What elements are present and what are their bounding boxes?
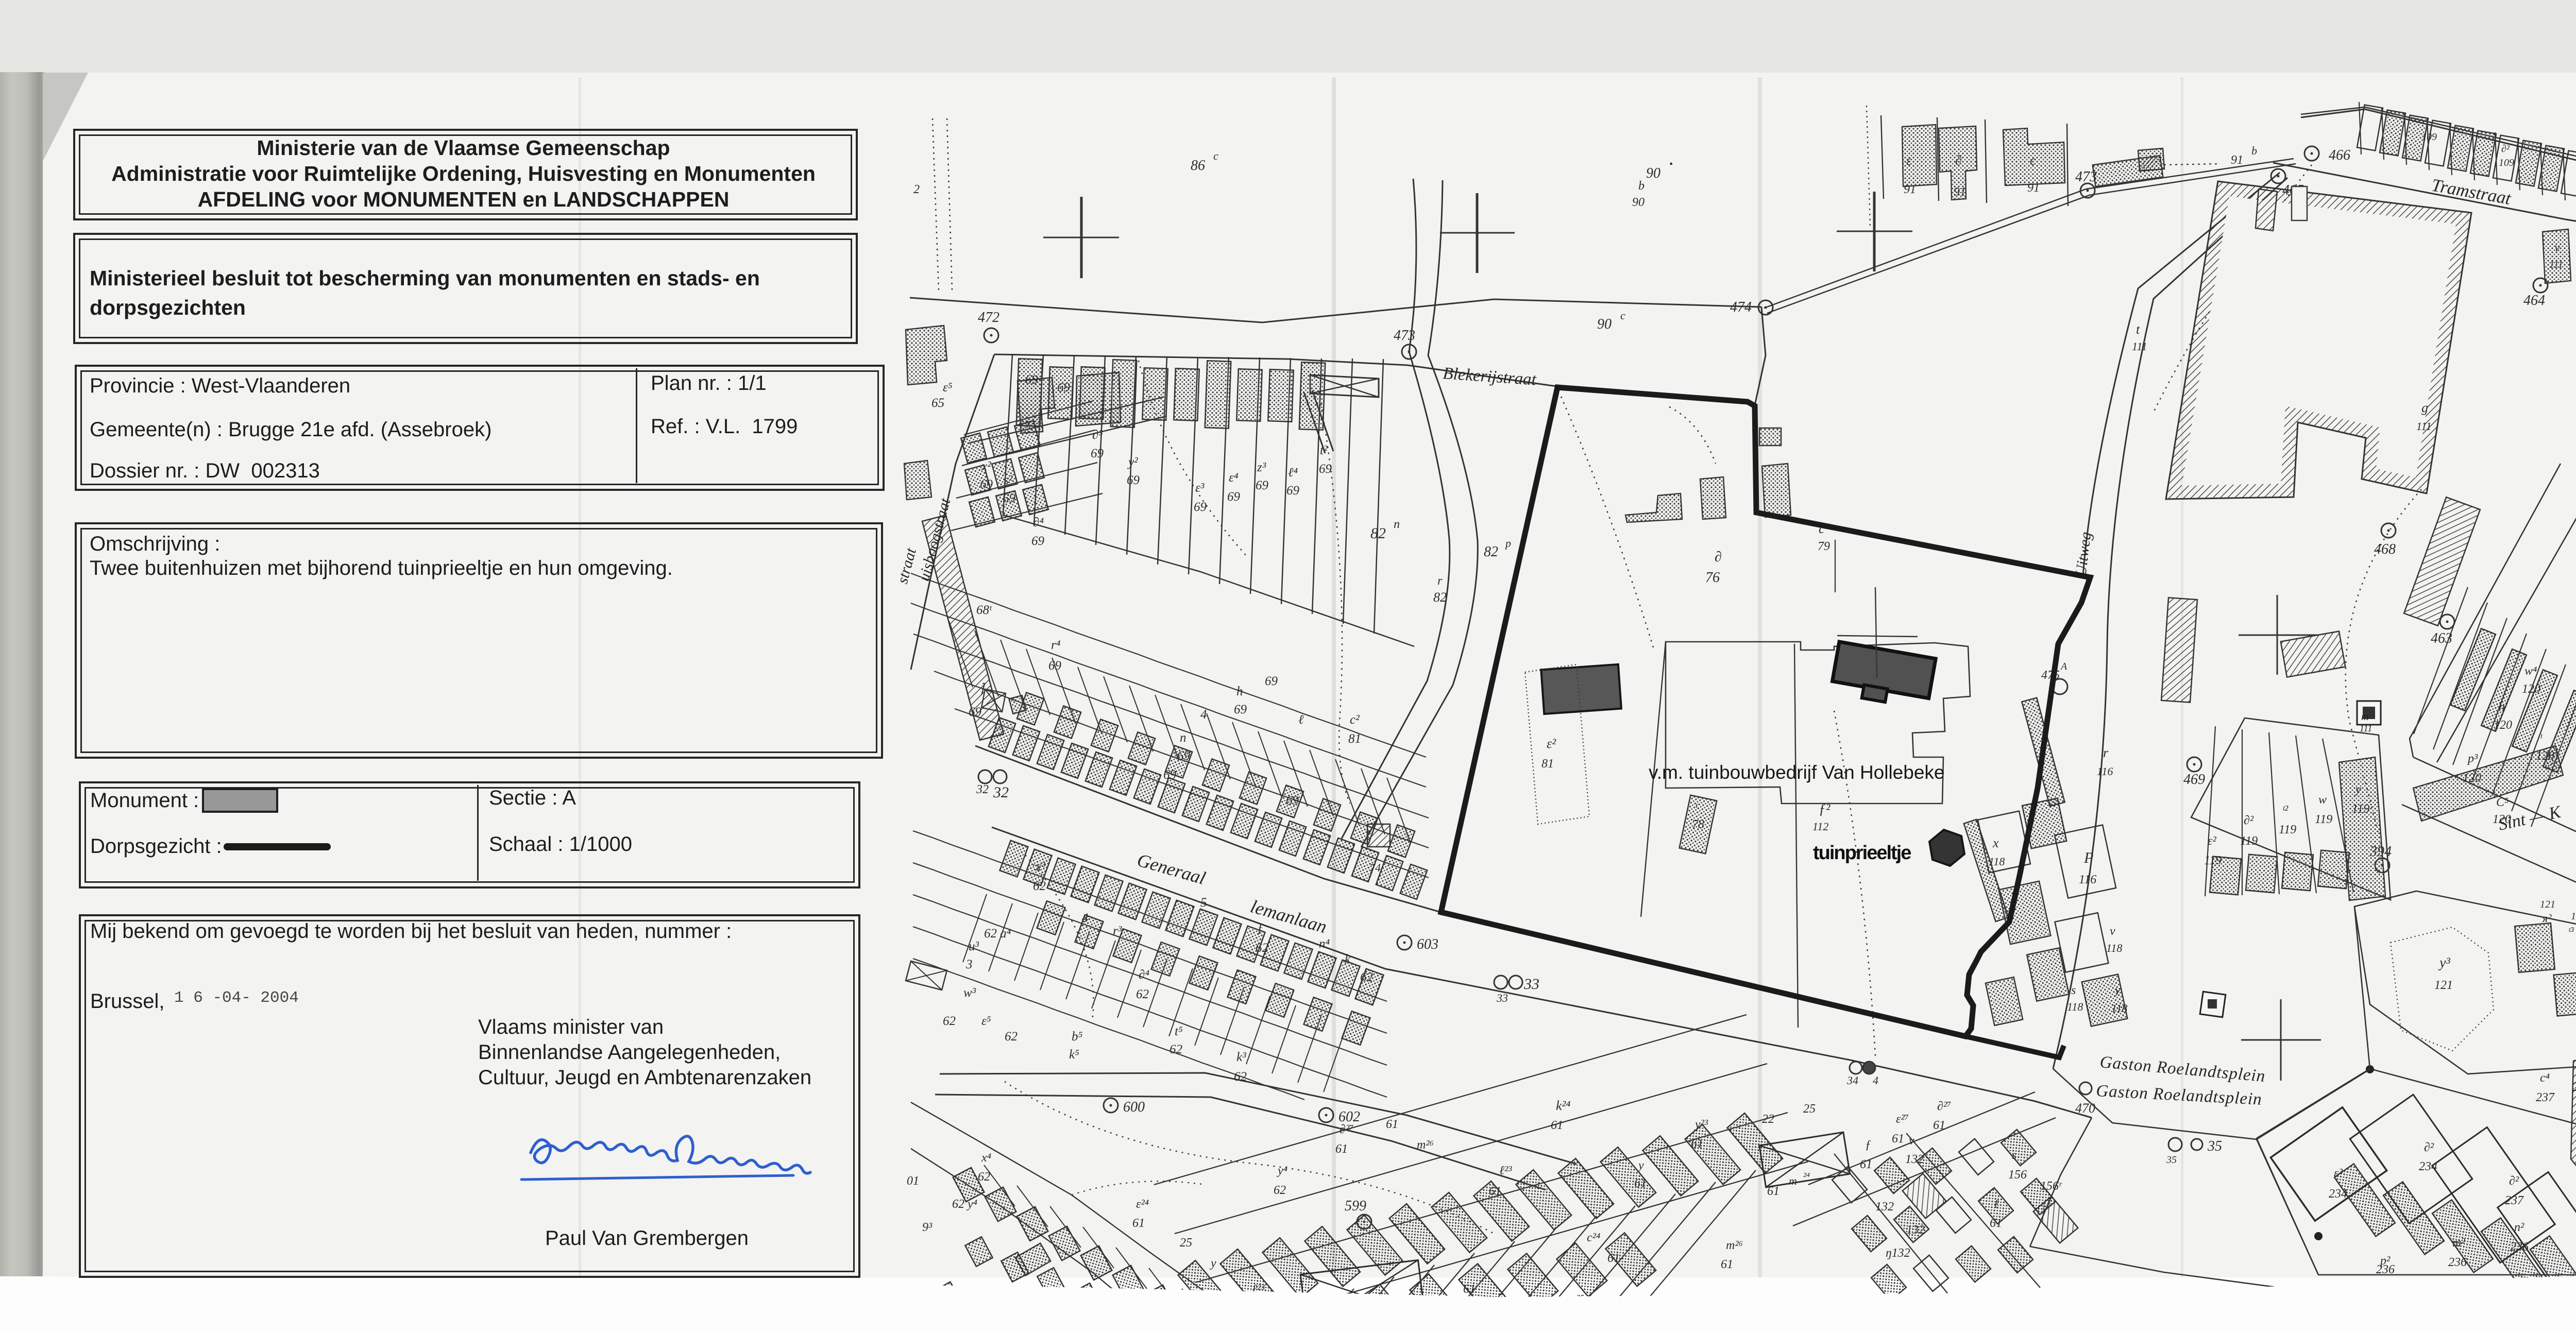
svg-text:22: 22 (1762, 1113, 1774, 1126)
svg-text:n: n (1394, 518, 1400, 531)
svg-text:61: 61 (1463, 1283, 1476, 1296)
svg-text:62: 62 (1234, 1070, 1247, 1084)
svg-text:62: 62 (1360, 970, 1373, 984)
svg-text:33: 33 (1523, 976, 1539, 993)
svg-text:236: 236 (2376, 1263, 2395, 1276)
svg-text:69: 69 (1057, 381, 1071, 395)
svg-text:Tramstraat: Tramstraat (2430, 175, 2513, 209)
svg-text:t⁵: t⁵ (1175, 1024, 1183, 1038)
svg-text:109: 109 (2421, 131, 2437, 143)
svg-text:∂²⁷: ∂²⁷ (1937, 1100, 1951, 1113)
svg-text:91: 91 (1904, 183, 1916, 196)
svg-text:82: 82 (1484, 544, 1498, 560)
svg-text:116: 116 (2079, 873, 2096, 886)
svg-text:62: 62 (1136, 987, 1149, 1001)
svg-text:61: 61 (1892, 1132, 1904, 1146)
svg-text:120: 120 (2493, 813, 2511, 826)
svg-text:p³: p³ (2467, 752, 2478, 765)
svg-text:w³: w³ (963, 986, 976, 1000)
svg-text:p: p (1504, 537, 1511, 550)
svg-text:109: 109 (2499, 157, 2514, 168)
svg-text:4: 4 (1873, 1074, 1878, 1087)
svg-text:w⁴: w⁴ (2524, 664, 2537, 678)
svg-text:90: 90 (1646, 165, 1660, 181)
svg-text:74: 74 (1369, 861, 1381, 874)
svg-text:69: 69 (1163, 768, 1177, 782)
svg-text:32: 32 (993, 784, 1009, 801)
svg-text:k⁵: k⁵ (1069, 1048, 1079, 1062)
svg-text:61: 61 (1607, 1252, 1620, 1265)
svg-text:62: 62 (943, 1014, 956, 1028)
svg-text:m: m (2361, 711, 2368, 723)
svg-text:y: y (1210, 1257, 1216, 1270)
svg-text:h: h (1236, 685, 1243, 698)
svg-text:x³: x³ (1035, 860, 1045, 874)
svg-text:ℓ⁴: ℓ⁴ (1288, 466, 1298, 480)
svg-text:120: 120 (2522, 682, 2540, 696)
svg-text:464: 464 (2523, 293, 2545, 309)
svg-text:ƒ: ƒ (1865, 1138, 1871, 1152)
svg-text:61: 61 (1132, 1217, 1145, 1230)
svg-text:61: 61 (1767, 1185, 1780, 1198)
svg-text:474: 474 (1730, 299, 1752, 315)
svg-text:ε²: ε² (2334, 1167, 2343, 1180)
svg-text:81: 81 (1348, 732, 1361, 746)
svg-text:ε: ε (1906, 153, 1912, 168)
svg-text:y: y (2354, 783, 2361, 796)
svg-text:∂²: ∂² (2424, 1141, 2434, 1154)
svg-text:90: 90 (1597, 316, 1612, 332)
svg-text:A: A (2060, 661, 2067, 672)
svg-text:33: 33 (1496, 992, 1508, 1004)
svg-text:600: 600 (1123, 1099, 1145, 1115)
svg-text:3: 3 (965, 958, 973, 971)
svg-text:ε⁵: ε⁵ (943, 381, 953, 395)
svg-text:n²: n² (2514, 1221, 2524, 1234)
svg-text:470: 470 (2075, 1101, 2095, 1116)
svg-text:∂⁴: ∂⁴ (1139, 968, 1149, 982)
svg-text:25: 25 (1180, 1236, 1192, 1250)
svg-text:y: y (1637, 1159, 1644, 1172)
svg-text:P: P (2083, 849, 2093, 866)
svg-text:c: c (1213, 149, 1218, 162)
svg-text:111: 111 (2132, 340, 2147, 353)
svg-text:v.m. tuinbouwbedrijf Van Holle: v.m. tuinbouwbedrijf Van Hollebeke (1649, 762, 1945, 783)
svg-text:35: 35 (2207, 1138, 2222, 1154)
svg-text:y: y (2114, 984, 2121, 997)
svg-text:r⁴: r⁴ (1051, 638, 1061, 652)
svg-text:∂²⁷: ∂²⁷ (1340, 1123, 1353, 1136)
svg-text:82: 82 (1433, 590, 1447, 605)
svg-text:b: b (1638, 179, 1645, 193)
svg-text:68ᵗ: 68ᵗ (976, 603, 992, 617)
svg-text:ℓ: ℓ (1298, 713, 1304, 727)
svg-text:237: 237 (2536, 1091, 2555, 1104)
svg-text:u³: u³ (969, 939, 979, 953)
svg-text:Gaston Roelandtsplein: Gaston Roelandtsplein (2096, 1082, 2263, 1109)
svg-text:61: 61 (1634, 1177, 1647, 1190)
svg-text:c⁴: c⁴ (2540, 1071, 2550, 1085)
svg-text:79: 79 (1818, 540, 1830, 553)
svg-text:35: 35 (2166, 1154, 2177, 1166)
svg-text:91: 91 (2027, 181, 2040, 195)
svg-text:111: 111 (2416, 420, 2432, 433)
svg-text:∂²: ∂² (2244, 814, 2254, 827)
svg-text:91: 91 (2231, 153, 2243, 167)
svg-text:ᴙ²: ᴙ² (2542, 912, 2552, 925)
svg-text:Blekerijstraat: Blekerijstraat (1442, 364, 1537, 389)
svg-text:23: 23 (2572, 1081, 2576, 1094)
svg-text:69: 69 (1127, 473, 1140, 487)
svg-text:603: 603 (1417, 936, 1438, 952)
svg-text:01: 01 (907, 1174, 919, 1188)
svg-text:∂⁴: ∂⁴ (1033, 516, 1044, 529)
svg-text:y³: y³ (2438, 955, 2450, 971)
svg-text:69: 69 (1265, 674, 1278, 688)
svg-text:k³: k³ (1236, 1050, 1246, 1064)
svg-text:234: 234 (2419, 1160, 2437, 1173)
svg-text:69: 69 (1048, 659, 1062, 673)
svg-text:n: n (1180, 731, 1187, 745)
svg-text:m²⁶: m²⁶ (1417, 1138, 1434, 1152)
svg-text:119: 119 (2279, 823, 2296, 836)
svg-text:z³: z³ (1257, 460, 1266, 474)
svg-text:•: • (1669, 159, 1673, 170)
svg-text:69: 69 (1286, 794, 1299, 808)
svg-text:ε²: ε² (1547, 736, 1556, 751)
svg-text:82: 82 (1370, 525, 1386, 542)
svg-text:t: t (2136, 322, 2140, 337)
svg-text:∂: ∂ (1955, 153, 1962, 168)
svg-text:69: 69 (1025, 373, 1039, 387)
svg-text:61: 61 (1721, 1258, 1733, 1271)
svg-text:²⁴: ²⁴ (1803, 1171, 1810, 1182)
svg-text:61: 61 (1386, 1118, 1398, 1131)
svg-text:ε²⁷: ε²⁷ (1896, 1113, 1909, 1126)
svg-text:69: 69 (1177, 749, 1191, 763)
svg-text:61: 61 (1551, 1119, 1563, 1132)
svg-text:ε²⁴: ε²⁴ (1136, 1198, 1149, 1211)
svg-text:236: 236 (2510, 1240, 2529, 1254)
svg-text:ƒ²: ƒ² (1819, 801, 1831, 817)
svg-text:118: 118 (2106, 942, 2122, 954)
svg-text:ƒ: ƒ (1257, 921, 1264, 935)
svg-text:w: w (2318, 793, 2327, 807)
svg-text:121: 121 (2540, 899, 2555, 910)
svg-text:69: 69 (1091, 447, 1104, 460)
svg-text:119: 119 (2204, 854, 2222, 867)
svg-text:x⁴: x⁴ (981, 1151, 991, 1165)
svg-text:ᵗ: ᵗ (2540, 731, 2543, 745)
svg-text:c²⁴: c²⁴ (1587, 1231, 1600, 1244)
svg-text:ℓ²³: ℓ²³ (1252, 1283, 1265, 1296)
svg-text:ℓ²³: ℓ²³ (1499, 1164, 1512, 1177)
svg-text:r: r (2103, 745, 2109, 760)
svg-text:61: 61 (1489, 1185, 1501, 1198)
svg-text:c: c (1620, 309, 1625, 322)
svg-text:b: b (2251, 144, 2257, 157)
svg-text:k: k (1345, 952, 1351, 966)
svg-text:599: 599 (1345, 1198, 1366, 1214)
svg-text:34: 34 (1846, 1074, 1858, 1087)
svg-text:121: 121 (2571, 911, 2576, 922)
svg-text:120: 120 (2536, 749, 2554, 763)
svg-text:c²: c² (1350, 713, 1360, 727)
svg-text:81: 81 (1541, 757, 1554, 771)
svg-text:9³: 9³ (922, 1221, 933, 1234)
svg-text:tuinprieeltje: tuinprieeltje (1813, 842, 1911, 864)
svg-text:90: 90 (1632, 196, 1645, 209)
svg-text:132: 132 (1875, 1200, 1894, 1214)
svg-text:y⁴: y⁴ (1277, 1164, 1287, 1177)
svg-text:121: 121 (2434, 979, 2453, 992)
svg-text:111: 111 (2360, 723, 2372, 733)
svg-text:ŋ132: ŋ132 (1886, 1246, 1910, 1260)
svg-text:65: 65 (931, 396, 944, 410)
svg-text:61: 61 (1691, 1137, 1703, 1151)
svg-text:91: 91 (1954, 185, 1966, 199)
svg-text:112: 112 (1812, 820, 1828, 833)
svg-text:119: 119 (2315, 813, 2332, 826)
svg-text:∂: ∂ (1715, 549, 1722, 565)
svg-text:78: 78 (1692, 818, 1704, 831)
svg-text:116: 116 (2097, 765, 2113, 778)
svg-text:x: x (1992, 835, 1999, 850)
svg-text:237: 237 (2505, 1194, 2524, 1207)
svg-text:Uitweg: Uitweg (2072, 531, 2094, 577)
svg-text:r: r (1437, 574, 1443, 588)
svg-text:25: 25 (1803, 1102, 1816, 1116)
svg-text:ε³: ε³ (1195, 481, 1205, 495)
svg-text:62: 62 (978, 1170, 990, 1184)
svg-text:62 a⁴: 62 a⁴ (984, 927, 1011, 941)
svg-text:69: 69 (1031, 534, 1045, 548)
svg-text:69: 69 (1227, 490, 1241, 504)
svg-text:120: 120 (2463, 772, 2481, 785)
svg-text:61: 61 (1335, 1142, 1348, 1156)
svg-text:69: 69 (1234, 703, 1247, 716)
svg-text:5: 5 (1200, 896, 1207, 910)
svg-text:m²: m² (2452, 1236, 2465, 1250)
svg-text:61: 61 (1933, 1119, 1945, 1132)
svg-text:118: 118 (2111, 1002, 2127, 1015)
svg-text:118: 118 (2067, 1000, 2083, 1013)
svg-text:472: 472 (978, 310, 999, 326)
svg-text:h: h (2499, 700, 2505, 714)
svg-text:n⁴: n⁴ (1319, 937, 1330, 951)
svg-text:4: 4 (1082, 911, 1089, 925)
svg-text:466: 466 (2329, 147, 2350, 163)
svg-text:69: 69 (1319, 462, 1332, 476)
svg-text:62: 62 (1256, 941, 1268, 955)
svg-text:ᵗ²: ᵗ² (2282, 804, 2289, 817)
svg-text:m²⁶: m²⁶ (1726, 1239, 1743, 1252)
svg-text:ε⁵: ε⁵ (981, 1014, 991, 1028)
svg-text:∂²: ∂² (2509, 1174, 2519, 1188)
svg-text:62: 62 (1274, 1184, 1286, 1197)
svg-text:y²³: y²³ (1694, 1118, 1708, 1131)
svg-text:s: s (2071, 984, 2076, 997)
svg-text:473: 473 (2075, 169, 2097, 185)
svg-text:86: 86 (1191, 158, 1205, 174)
svg-text:119: 119 (2352, 802, 2369, 816)
svg-text:62: 62 (1005, 1030, 1018, 1044)
svg-text:469: 469 (2183, 772, 2205, 788)
svg-text:ε⁴: ε⁴ (1229, 471, 1239, 485)
svg-text:32: 32 (976, 783, 989, 796)
svg-text:69: 69 (1194, 500, 1207, 514)
svg-text:234: 234 (2329, 1187, 2347, 1201)
svg-text:473: 473 (1394, 328, 1415, 344)
svg-text:k²⁴: k²⁴ (1556, 1098, 1570, 1113)
svg-text:v: v (2110, 925, 2115, 938)
svg-text:2: 2 (913, 183, 920, 196)
svg-text:69: 69 (1286, 484, 1300, 498)
svg-text:62: 62 (1033, 879, 1046, 893)
svg-text:119: 119 (2240, 834, 2258, 848)
svg-text:r³: r³ (1113, 924, 1122, 938)
svg-text:69: 69 (1256, 478, 1269, 492)
svg-text:t²: t² (1320, 443, 1328, 457)
svg-text:236: 236 (2448, 1256, 2467, 1269)
svg-text:m: m (1789, 1174, 1797, 1187)
svg-text:ᵗ³: ᵗ³ (2568, 925, 2574, 937)
svg-text:c: c (2030, 153, 2036, 168)
svg-text:468: 468 (2374, 541, 2396, 557)
svg-text:4: 4 (1200, 708, 1207, 722)
svg-text:120: 120 (2494, 719, 2512, 732)
svg-text:y²: y² (1127, 455, 1138, 469)
svg-text:62: 62 (1170, 1043, 1182, 1056)
svg-text:ε²: ε² (2208, 834, 2216, 848)
svg-text:156: 156 (2008, 1168, 2027, 1182)
svg-text:b⁵: b⁵ (1072, 1030, 1083, 1044)
svg-text:∂²: ∂² (2501, 143, 2510, 155)
svg-text:76: 76 (1705, 570, 1720, 586)
svg-text:straat: straat (894, 546, 920, 586)
svg-text:ε²⁵: ε²⁵ (1571, 1293, 1584, 1306)
svg-text:g: g (2421, 400, 2428, 415)
